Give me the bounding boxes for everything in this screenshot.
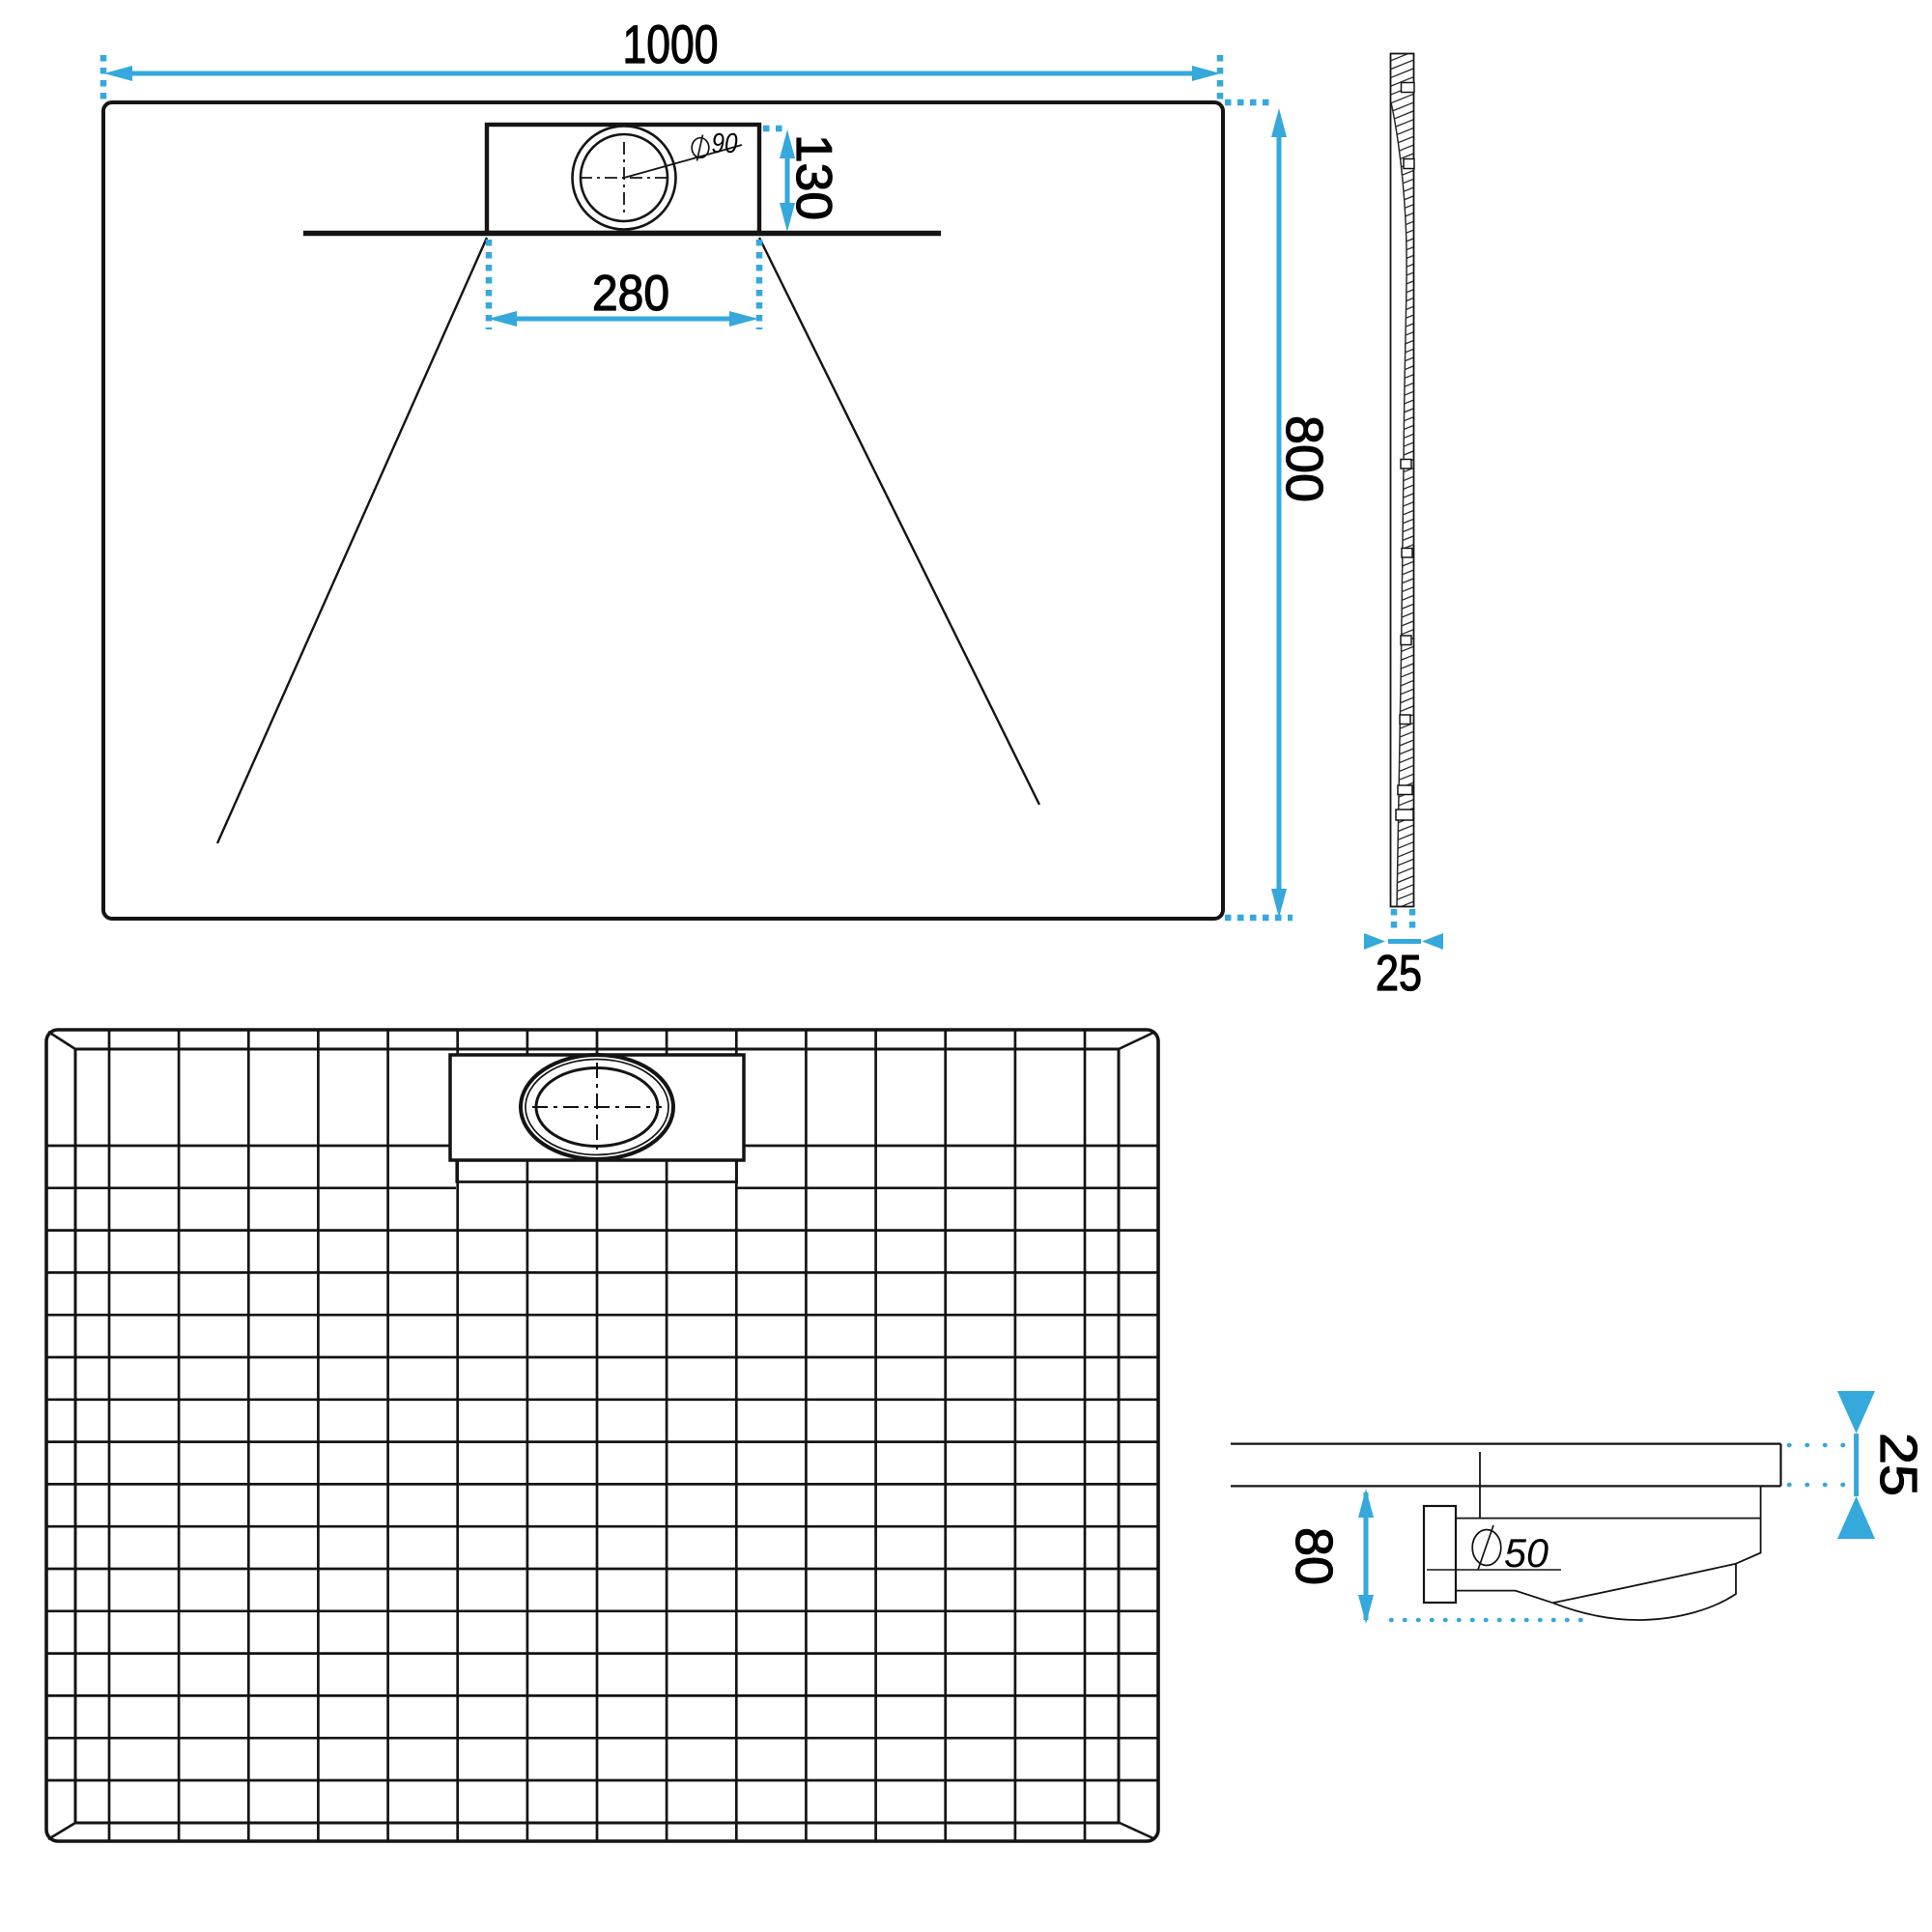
svg-text:25: 25 [1869, 1433, 1927, 1496]
svg-text:130: 130 [785, 134, 841, 220]
svg-text:800: 800 [1275, 415, 1333, 502]
svg-text:80: 80 [1285, 1527, 1343, 1585]
svg-text:280: 280 [592, 266, 669, 322]
svg-text:25: 25 [1376, 946, 1422, 1002]
svg-text:1000: 1000 [623, 14, 719, 74]
svg-text:50: 50 [1504, 1530, 1549, 1576]
svg-text:90: 90 [712, 128, 738, 159]
